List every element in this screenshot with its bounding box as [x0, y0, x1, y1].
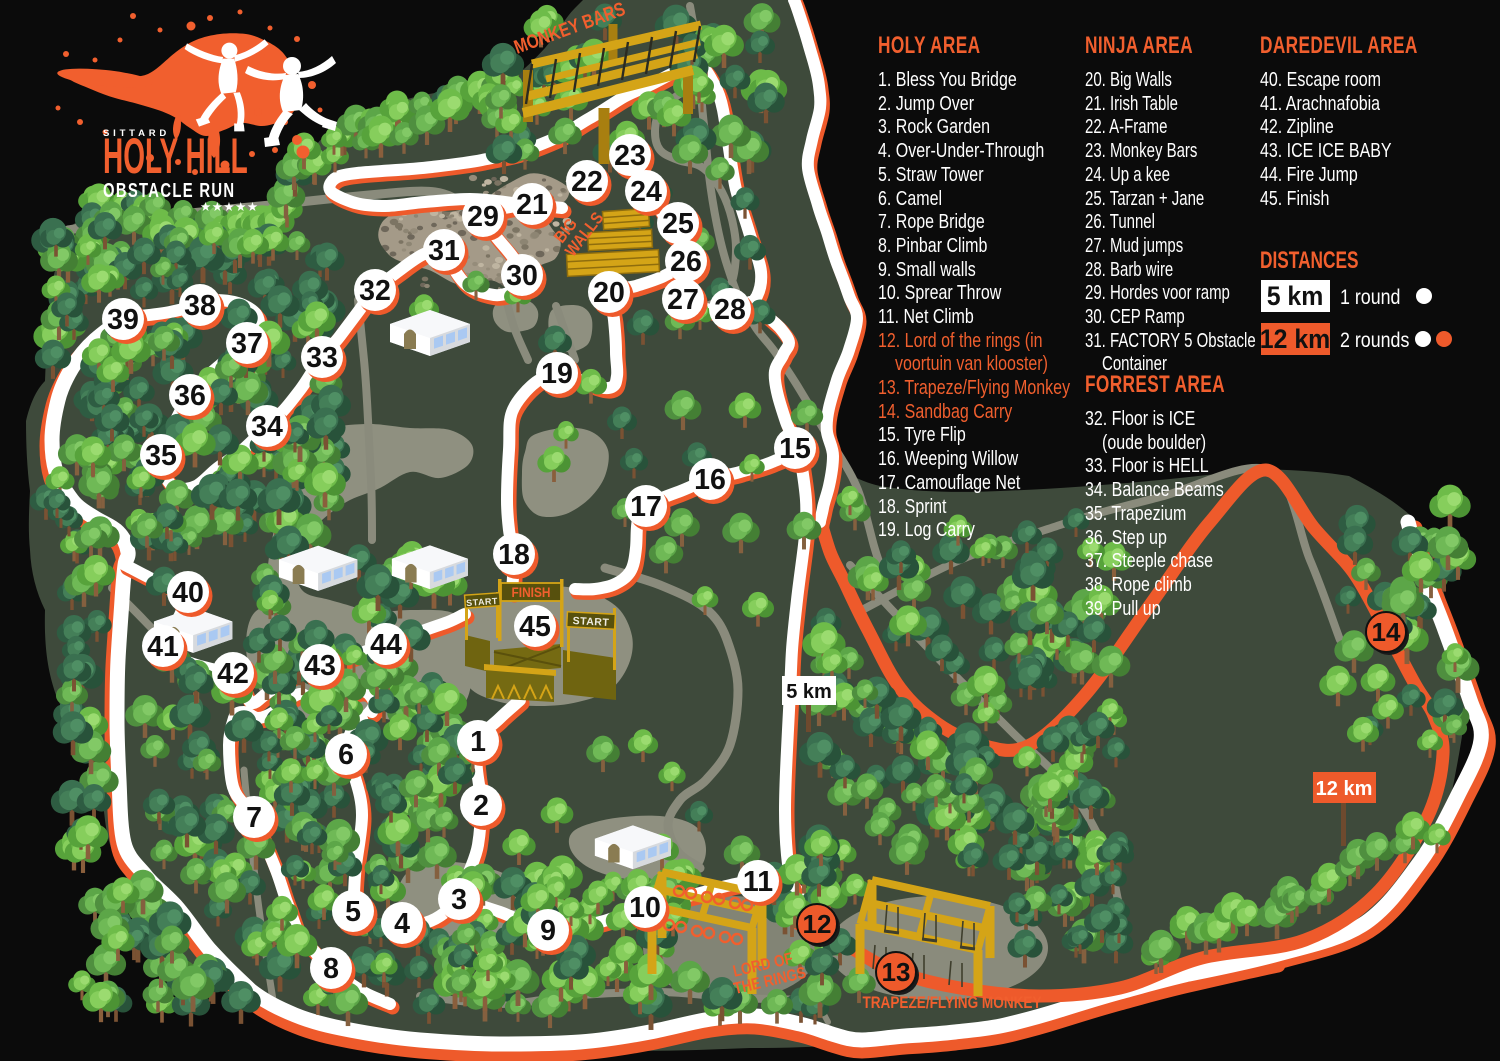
svg-text:35: 35 — [145, 440, 177, 472]
svg-text:32: 32 — [359, 275, 391, 307]
svg-text:9. Small walls: 9. Small walls — [878, 258, 976, 280]
svg-text:26. Tunnel: 26. Tunnel — [1085, 210, 1155, 233]
svg-text:2: 2 — [473, 790, 489, 822]
svg-text:HOLY HILL: HOLY HILL — [103, 127, 248, 184]
svg-text:12 km: 12 km — [1316, 778, 1373, 800]
svg-text:43: 43 — [304, 650, 336, 682]
svg-text:34: 34 — [251, 411, 283, 443]
svg-text:44. Fire Jump: 44. Fire Jump — [1260, 163, 1358, 185]
svg-text:22. A-Frame: 22. A-Frame — [1085, 115, 1168, 138]
svg-text:30: 30 — [506, 260, 538, 292]
svg-text:21. Irish Table: 21. Irish Table — [1085, 92, 1178, 115]
svg-text:12. Lord of the rings (in: 12. Lord of the rings (in — [878, 329, 1043, 351]
svg-text:34. Balance Beams: 34. Balance Beams — [1085, 478, 1224, 500]
svg-text:28: 28 — [714, 294, 746, 326]
svg-text:23. Monkey Bars: 23. Monkey Bars — [1085, 139, 1198, 162]
svg-text:19: 19 — [541, 358, 573, 390]
svg-text:OBSTACLE RUN: OBSTACLE RUN — [103, 179, 235, 202]
svg-text:10: 10 — [629, 892, 661, 924]
svg-text:17. Camouflage Net: 17. Camouflage Net — [878, 471, 1020, 493]
svg-text:33. Floor is HELL: 33. Floor is HELL — [1085, 454, 1209, 476]
svg-text:8: 8 — [323, 953, 339, 985]
svg-text:voortuin van klooster): voortuin van klooster) — [895, 352, 1048, 374]
svg-text:DAREDEVIL AREA: DAREDEVIL AREA — [1260, 32, 1418, 58]
svg-text:16: 16 — [694, 464, 726, 496]
svg-text:44: 44 — [370, 629, 402, 661]
svg-text:41. Arachnafobia: 41. Arachnafobia — [1260, 92, 1381, 114]
svg-text:15. Tyre Flip: 15. Tyre Flip — [878, 423, 966, 445]
svg-text:10. Sprear Throw: 10. Sprear Throw — [878, 281, 1002, 303]
svg-text:NINJA AREA: NINJA AREA — [1085, 32, 1193, 58]
svg-text:42: 42 — [217, 658, 249, 690]
svg-text:7: 7 — [246, 802, 262, 834]
svg-text:45: 45 — [519, 611, 551, 643]
svg-text:27. Mud jumps: 27. Mud jumps — [1085, 234, 1183, 257]
svg-text:25: 25 — [662, 208, 694, 240]
svg-text:20. Big Walls: 20. Big Walls — [1085, 68, 1172, 91]
svg-text:29. Hordes voor ramp: 29. Hordes voor ramp — [1085, 281, 1230, 304]
svg-text:43. ICE ICE BABY: 43. ICE ICE BABY — [1260, 139, 1392, 161]
svg-text:14: 14 — [1372, 617, 1401, 647]
svg-text:39: 39 — [107, 304, 139, 336]
svg-text:42. Zipline: 42. Zipline — [1260, 115, 1334, 137]
svg-text:TRAPEZE/FLYING MONKEY: TRAPEZE/FLYING MONKEY — [862, 994, 1041, 1013]
svg-text:2. Jump Over: 2. Jump Over — [878, 92, 974, 114]
svg-text:22: 22 — [571, 166, 603, 198]
svg-text:36. Step up: 36. Step up — [1085, 526, 1167, 548]
svg-text:39. Pull up: 39. Pull up — [1085, 597, 1161, 619]
svg-text:7. Rope Bridge: 7. Rope Bridge — [878, 210, 985, 232]
svg-text:41: 41 — [147, 631, 179, 663]
svg-text:15: 15 — [779, 433, 811, 465]
svg-text:★★★★★: ★★★★★ — [200, 200, 259, 214]
svg-text:24. Up a kee: 24. Up a kee — [1085, 163, 1170, 186]
svg-text:6. Camel: 6. Camel — [878, 187, 942, 209]
svg-text:21: 21 — [516, 189, 548, 221]
svg-text:FORREST AREA: FORREST AREA — [1085, 371, 1225, 397]
svg-text:25. Tarzan + Jane: 25. Tarzan + Jane — [1085, 187, 1204, 210]
svg-text:17: 17 — [630, 491, 662, 523]
svg-text:35. Trapezium: 35. Trapezium — [1085, 502, 1186, 524]
svg-text:40: 40 — [172, 577, 204, 609]
svg-text:13: 13 — [882, 957, 911, 987]
svg-text:45. Finish: 45. Finish — [1260, 187, 1329, 209]
svg-text:29: 29 — [467, 201, 499, 233]
svg-text:6: 6 — [338, 739, 354, 771]
svg-text:38. Rope climb: 38. Rope climb — [1085, 573, 1192, 595]
svg-text:FINISH: FINISH — [512, 584, 551, 600]
svg-text:20: 20 — [593, 277, 625, 309]
svg-text:5: 5 — [345, 896, 361, 928]
svg-text:5 km: 5 km — [786, 681, 832, 703]
svg-text:11. Net Climb: 11. Net Climb — [878, 305, 974, 327]
svg-text:HOLY AREA: HOLY AREA — [878, 32, 980, 58]
svg-text:13. Trapeze/Flying Monkey: 13. Trapeze/Flying Monkey — [878, 376, 1071, 398]
svg-text:3: 3 — [451, 884, 467, 916]
svg-text:DISTANCES: DISTANCES — [1260, 247, 1359, 273]
svg-text:1: 1 — [470, 726, 486, 758]
svg-text:4: 4 — [394, 908, 410, 940]
svg-text:12: 12 — [803, 909, 832, 939]
svg-text:3. Rock Garden: 3. Rock Garden — [878, 115, 990, 137]
svg-text:26: 26 — [670, 246, 702, 278]
svg-text:24: 24 — [630, 176, 662, 208]
svg-text:33: 33 — [306, 342, 338, 374]
svg-text:18: 18 — [498, 539, 530, 571]
svg-text:18. Sprint: 18. Sprint — [878, 495, 946, 517]
svg-text:38: 38 — [184, 290, 216, 322]
svg-text:5. Straw Tower: 5. Straw Tower — [878, 163, 984, 185]
svg-text:27: 27 — [667, 284, 699, 316]
svg-text:2 rounds: 2 rounds — [1340, 329, 1410, 353]
svg-text:37. Steeple chase: 37. Steeple chase — [1085, 549, 1213, 571]
svg-text:16. Weeping Willow: 16. Weeping Willow — [878, 447, 1019, 469]
svg-text:(oude boulder): (oude boulder) — [1102, 431, 1206, 453]
svg-text:11: 11 — [743, 866, 773, 898]
svg-text:1. Bless You Bridge: 1. Bless You Bridge — [878, 68, 1017, 90]
svg-text:8. Pinbar Climb: 8. Pinbar Climb — [878, 234, 987, 256]
svg-text:19. Log Carry: 19. Log Carry — [878, 518, 976, 540]
svg-text:5 km: 5 km — [1267, 282, 1324, 311]
svg-text:31: 31 — [428, 235, 460, 267]
svg-text:28. Barb wire: 28. Barb wire — [1085, 258, 1173, 281]
svg-text:37: 37 — [231, 328, 263, 360]
svg-text:12 km: 12 km — [1260, 325, 1330, 354]
svg-text:40. Escape room: 40. Escape room — [1260, 68, 1381, 90]
svg-text:14. Sandbag Carry: 14. Sandbag Carry — [878, 400, 1013, 422]
svg-text:32. Floor is ICE: 32. Floor is ICE — [1085, 407, 1195, 429]
svg-text:9: 9 — [540, 915, 556, 947]
svg-text:36: 36 — [174, 380, 206, 412]
svg-text:31. FACTORY 5 Obstacle: 31. FACTORY 5 Obstacle — [1085, 329, 1256, 352]
svg-text:23: 23 — [614, 140, 646, 172]
svg-text:30. CEP Ramp: 30. CEP Ramp — [1085, 305, 1185, 328]
svg-text:4. Over-Under-Through: 4. Over-Under-Through — [878, 139, 1044, 161]
svg-text:1 round: 1 round — [1340, 286, 1400, 310]
svg-text:START: START — [572, 615, 609, 629]
